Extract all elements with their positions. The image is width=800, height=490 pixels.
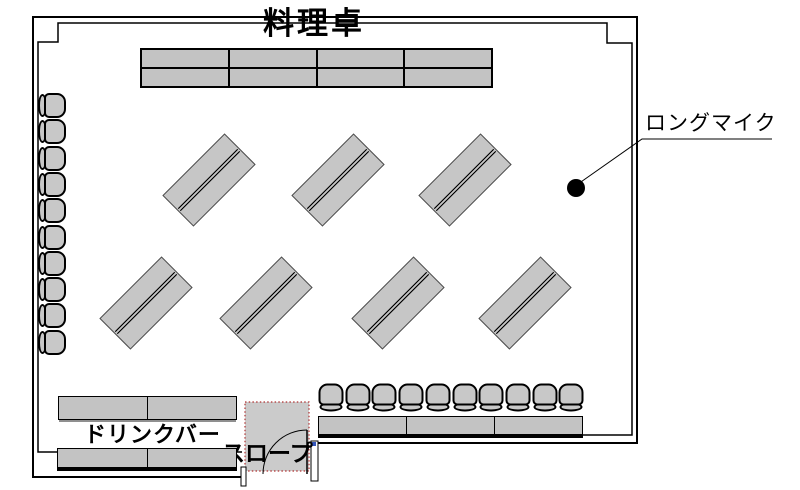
chair-seat [372, 384, 397, 406]
chair-seat [44, 198, 66, 223]
table-segment [407, 417, 494, 434]
wall-chair [38, 224, 66, 251]
chair-seat [44, 172, 66, 197]
table-segment [230, 50, 316, 67]
table-segment [405, 50, 491, 67]
table-segment [59, 397, 147, 419]
stage-chair [531, 384, 558, 412]
stage-table [318, 416, 583, 438]
stage-chair [451, 384, 478, 412]
chair-seat [44, 93, 66, 118]
table-segment [495, 417, 582, 434]
chair-seat [44, 330, 66, 355]
table-segment [142, 50, 228, 67]
stage-chair [424, 384, 451, 412]
stage-chair [504, 384, 531, 412]
stage-chair [558, 384, 585, 412]
table-segment [318, 50, 404, 67]
wall-chair [38, 276, 66, 303]
table-segment [319, 417, 406, 434]
wall-chair [38, 171, 66, 198]
stage-chair [371, 384, 398, 412]
stage-chair [398, 384, 425, 412]
chair-seat [44, 225, 66, 250]
chair-seat [532, 384, 557, 406]
chair-seat [399, 384, 424, 406]
stage-chair [318, 384, 345, 412]
chair-seat [44, 277, 66, 302]
table-segment [58, 449, 147, 467]
chair-seat [345, 384, 370, 406]
drink-bar-table-lower [57, 448, 237, 471]
banquet-table [140, 48, 493, 88]
chair-seat [425, 384, 450, 406]
table-segment [142, 69, 228, 86]
chair-seat [559, 384, 584, 406]
wall-chair [38, 250, 66, 277]
wall-chair [38, 145, 66, 172]
door-jamb-left [241, 467, 246, 486]
table-segment [318, 69, 404, 86]
floor-plan: 料理卓 ロングマイク ドリンクバー スロープ [0, 0, 800, 490]
wall-chair [38, 118, 66, 145]
table-segment [148, 449, 237, 467]
room-title: 料理卓 [263, 9, 365, 40]
mic-dot-icon [567, 179, 585, 197]
drink-bar-label: ドリンクバー [84, 425, 221, 447]
long-mic-label: ロングマイク [645, 113, 777, 134]
chair-seat [44, 146, 66, 171]
table-segment [405, 69, 491, 86]
wall-chair [38, 197, 66, 224]
drink-bar-table-upper [58, 396, 237, 420]
table-segment [230, 69, 316, 86]
chair-seat [44, 251, 66, 276]
stage-chair [344, 384, 371, 412]
table-segment [148, 397, 236, 419]
chair-seat [44, 303, 66, 328]
wall-chair [38, 302, 66, 329]
chair-seat [452, 384, 477, 406]
wall-chair [38, 329, 66, 356]
chair-seat [44, 119, 66, 144]
mic-leader-line [578, 139, 772, 184]
stage-chair [478, 384, 505, 412]
wall-chair [38, 92, 66, 119]
chair-seat [479, 384, 504, 406]
chair-seat [319, 384, 344, 406]
chair-seat [505, 384, 530, 406]
